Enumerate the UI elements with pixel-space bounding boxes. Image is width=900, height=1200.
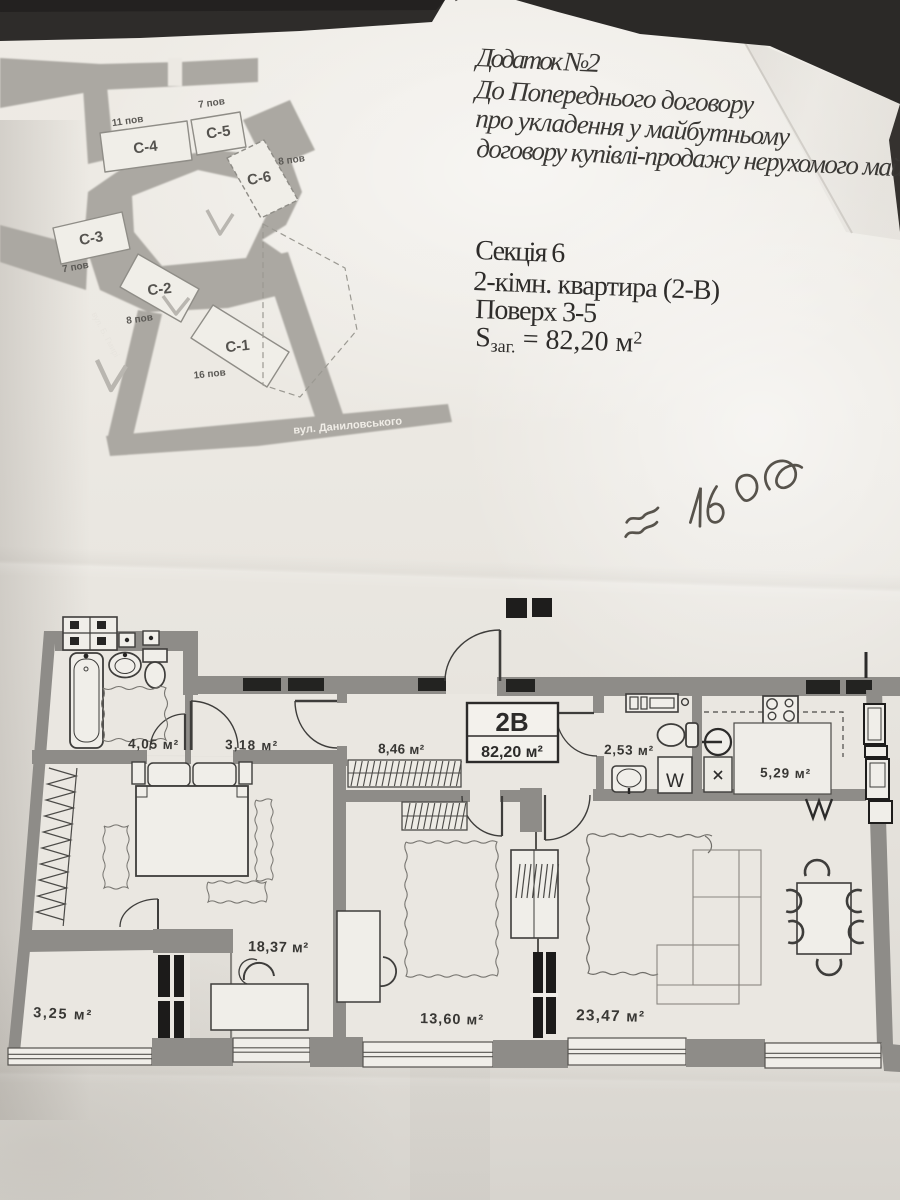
svg-text:С-5: С-5	[205, 122, 231, 142]
svg-text:82,20 м²: 82,20 м²	[481, 744, 543, 761]
svg-text:W: W	[666, 771, 684, 792]
svg-text:2В: 2В	[495, 707, 528, 737]
svg-text:13,60 м²: 13,60 м²	[420, 1011, 484, 1029]
svg-text:4,05 м²: 4,05 м²	[128, 736, 179, 752]
svg-text:С-1: С-1	[225, 337, 251, 356]
svg-text:С-4: С-4	[132, 138, 159, 158]
svg-text:Додаток №2: Додаток №2	[473, 42, 601, 78]
svg-text:Секція 6: Секція 6	[475, 235, 566, 269]
svg-text:8,46 м²: 8,46 м²	[378, 741, 425, 757]
svg-text:18,37 м²: 18,37 м²	[248, 939, 309, 957]
svg-text:5,29 м²: 5,29 м²	[760, 765, 811, 781]
svg-text:2,53 м²: 2,53 м²	[604, 742, 654, 758]
svg-text:С-2: С-2	[147, 280, 173, 299]
